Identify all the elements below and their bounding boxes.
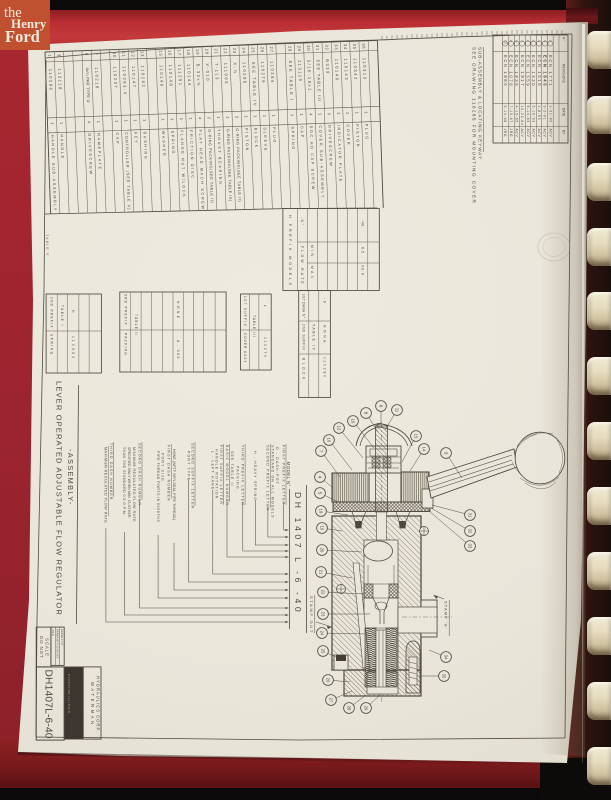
svg-text:SCALE: SCALE	[44, 638, 49, 657]
svg-text:2: 2	[336, 112, 341, 114]
svg-text:JRG: JRG	[503, 129, 507, 138]
svg-text:-6: -6	[323, 298, 327, 305]
svg-text:110144: 110144	[186, 64, 192, 87]
svg-text:16: 16	[326, 438, 331, 443]
svg-text:BUSHING: BUSHING	[143, 132, 148, 161]
svg-text:1: 1	[59, 122, 64, 124]
svg-text:A - XXX: A - XXX	[176, 340, 180, 360]
svg-text:1: 1	[179, 118, 184, 120]
svg-text:2: 2	[549, 40, 553, 42]
svg-text:DO NOT: DO NOT	[39, 636, 44, 658]
svg-text:1-31-60: 1-31-60	[548, 106, 552, 124]
svg-text:7-15-67: 7-15-67	[509, 106, 513, 124]
svg-text:6: 6	[84, 53, 89, 56]
svg-text:SEE TABLE I: SEE TABLE I	[288, 60, 294, 101]
svg-text:H: H	[71, 310, 75, 313]
svg-text:2: 2	[207, 117, 212, 119]
svg-text:MINIMUM REGULATED FLOW RATE: MINIMUM REGULATED FLOW RATE	[132, 447, 136, 522]
svg-text:FLAT HEAD MACH SCREW: FLAT HEAD MACH SCREW	[198, 130, 205, 211]
svg-text:DH 1407 L -6 -40: DH 1407 L -6 -40	[293, 492, 303, 615]
svg-text:4: 4	[537, 40, 541, 42]
svg-text:X-⅛: X-⅛	[233, 62, 238, 74]
svg-text:9: 9	[509, 40, 513, 42]
svg-text:14: 14	[421, 447, 426, 452]
svg-text:MAXIMUM REGULATED FLOW RATE: MAXIMUM REGULATED FLOW RATE	[104, 447, 108, 523]
svg-text:19: 19	[195, 49, 200, 55]
svg-text:T-113: T-113	[214, 63, 220, 81]
svg-text:110283-X: 110283-X	[122, 66, 128, 96]
svg-text:WASHER: WASHER	[161, 131, 166, 158]
svg-text:ECN 1659: ECN 1659	[526, 55, 531, 87]
svg-text:3: 3	[57, 54, 62, 57]
svg-text:1: 1	[271, 114, 276, 116]
svg-text:25: 25	[320, 649, 325, 654]
svg-text:BY: BY	[562, 130, 566, 135]
svg-text:SPECIFIED ONLY WHEN MIN. IS OT: SPECIFIED ONLY WHEN MIN. IS OTHER	[127, 447, 131, 518]
svg-text:O-RING PACKING(SEE TABLE III): O-RING PACKING(SEE TABLE III)	[226, 129, 233, 202]
svg-text:1ST SUFFIX: 1ST SUFFIX	[243, 296, 247, 327]
svg-text:3: 3	[443, 452, 448, 455]
svg-text:ACV: ACV	[515, 129, 519, 138]
svg-text:23: 23	[320, 612, 325, 617]
svg-text:24: 24	[319, 631, 324, 636]
svg-text:INDICATOR PLATE: INDICATOR PLATE	[337, 125, 343, 183]
svg-text:18: 18	[186, 49, 191, 55]
svg-text:15: 15	[158, 50, 163, 56]
svg-text:9-14-63: 9-14-63	[526, 106, 530, 124]
svg-text:NONE: NONE	[323, 325, 327, 345]
svg-text:20: 20	[319, 548, 324, 553]
svg-text:23: 23	[232, 48, 237, 54]
svg-text:WATERMAN: WATERMAN	[90, 682, 95, 727]
svg-text:DRIVESCREW: DRIVESCREW	[87, 133, 92, 175]
svg-text:17: 17	[177, 50, 182, 56]
svg-text:1-8-63: 1-8-63	[537, 106, 541, 121]
svg-text:4: 4	[198, 117, 203, 120]
svg-text:SEE DRAWING 110285 FOR MOUNTIN: SEE DRAWING 110285 FOR MOUNTING COVER	[472, 47, 477, 204]
svg-text:27: 27	[328, 698, 333, 703]
svg-text:X-010: X-010	[205, 63, 211, 82]
svg-text:4: 4	[317, 476, 322, 479]
svg-text:110280: 110280	[242, 62, 248, 85]
svg-text:110952: 110952	[71, 336, 75, 360]
svg-text:LEVER OPERATED ADJUSTABLE FLOW: LEVER OPERATED ADJUSTABLE FLOW REGULATOR	[55, 381, 64, 616]
svg-text:111291: 111291	[177, 64, 183, 86]
svg-text:110384: 110384	[269, 61, 275, 84]
svg-text:SEE TABLE II: SEE TABLE II	[230, 451, 234, 487]
svg-text:SUB-ASSEMBLY & LOCATING KEYWAY: SUB-ASSEMBLY & LOCATING KEYWAY	[477, 47, 482, 160]
svg-text:1: 1	[133, 119, 138, 121]
svg-text:DH1407L-6-40: DH1407L-6-40	[43, 670, 54, 739]
svg-text:ECN 1835: ECN 1835	[514, 55, 519, 87]
svg-text:JRG: JRG	[509, 129, 513, 138]
svg-text:110147: 110147	[131, 66, 137, 89]
svg-text:111095: 111095	[223, 63, 229, 85]
svg-text:2ND SUFFIX: 2ND SUFFIX	[302, 324, 306, 351]
svg-text:1: 1	[318, 113, 323, 115]
svg-text:H - HEAVY SPRING: H - HEAVY SPRING	[253, 451, 257, 501]
svg-text:TABLE II: TABLE II	[134, 314, 138, 337]
svg-text:THIRD DASH NUMBER: THIRD DASH NUMBER	[109, 443, 113, 501]
svg-text:4: 4	[308, 113, 313, 116]
svg-text:ECN 1817: ECN 1817	[520, 55, 525, 87]
svg-text:ECN 1010: ECN 1010	[537, 55, 542, 87]
svg-text:1: 1	[96, 121, 101, 123]
svg-text:FIRST DASH NUMBER: FIRST DASH NUMBER	[167, 445, 171, 502]
svg-text:1: 1	[290, 114, 295, 116]
svg-text:SCALE 1"=1": SCALE 1"=1"	[60, 629, 64, 646]
svg-text:SECOND DASH NUMBER: SECOND DASH NUMBER	[138, 443, 142, 506]
svg-text:20: 20	[204, 49, 209, 55]
svg-text:33: 33	[334, 44, 339, 50]
svg-text:7: 7	[94, 53, 99, 56]
svg-text:THRUST BEARING: THRUST BEARING	[216, 129, 222, 186]
svg-text:16: 16	[167, 50, 172, 56]
svg-text:110143: 110143	[343, 58, 349, 81]
svg-text:-ASSEMBLY-: -ASSEMBLY-	[66, 449, 75, 506]
svg-text:1: 1	[345, 112, 350, 114]
svg-text:ACV: ACV	[526, 129, 530, 138]
svg-text:110282: 110282	[140, 66, 146, 89]
svg-text:6: 6	[378, 405, 383, 408]
svg-text:PISTON: PISTON	[244, 128, 249, 152]
svg-text:31: 31	[467, 513, 472, 518]
svg-text:8: 8	[363, 412, 368, 415]
svg-text:7: 7	[520, 40, 524, 42]
svg-text:3: 3	[327, 113, 332, 115]
svg-text:KEY: KEY	[133, 132, 137, 145]
svg-text:MODEL N°: MODEL N°	[286, 462, 291, 487]
svg-text:31: 31	[315, 45, 320, 51]
svg-text:6: 6	[526, 40, 530, 42]
svg-text:110313: 110313	[362, 58, 368, 81]
svg-text:110270: 110270	[263, 337, 267, 359]
svg-text:PACKING: PACKING	[123, 333, 127, 356]
svg-text:THIRD PREFIX LETTER: THIRD PREFIX LETTER	[241, 445, 245, 506]
svg-text:STAMP OUT: STAMP OUT	[309, 596, 313, 634]
svg-text:SLEEVE: SLEEVE	[263, 127, 268, 152]
svg-text:24: 24	[241, 47, 246, 53]
svg-text:CAP: CAP	[300, 126, 304, 139]
svg-text:1: 1	[355, 112, 360, 114]
svg-text:BLOCK: BLOCK	[253, 128, 258, 149]
svg-text:O-RING PACKING(SEE TABLE II): O-RING PACKING(SEE TABLE II)	[235, 128, 242, 202]
svg-text:SECOND PREFIX LETTER: SECOND PREFIX LETTER	[266, 445, 270, 512]
svg-text:110279: 110279	[260, 61, 266, 84]
svg-text:L - LEFT HAND: L - LEFT HAND	[211, 451, 215, 491]
svg-text:6.5: 6.5	[361, 247, 365, 254]
svg-text:3-2-61: 3-2-61	[543, 106, 547, 121]
svg-text:2ND PREFIX: 2ND PREFIX	[50, 297, 54, 329]
svg-text:FLANGE NUT W/LOCK: FLANGE NUT W/LOCK	[180, 130, 186, 198]
svg-text:3: 3	[234, 116, 239, 118]
svg-text:DRIVESCREW: DRIVESCREW	[327, 125, 332, 167]
svg-text:COVER: COVER	[346, 124, 351, 146]
svg-text:BLOCK: BLOCK	[302, 358, 306, 382]
svg-text:4-15-65: 4-15-65	[515, 106, 519, 124]
svg-text:HANDLE: HANDLE	[59, 134, 64, 159]
svg-text:ACV: ACV	[548, 129, 552, 138]
svg-text:5-16-63: 5-16-63	[531, 106, 535, 124]
svg-text:4: 4	[87, 121, 92, 124]
svg-text:13: 13	[140, 51, 145, 57]
svg-text:27: 27	[269, 46, 274, 52]
svg-text:36: 36	[361, 43, 366, 49]
svg-text:35: 35	[441, 674, 446, 679]
svg-text:1: 1	[142, 119, 147, 121]
svg-text:STANDARD ON ALL MODELS: STANDARD ON ALL MODELS	[271, 445, 275, 519]
svg-text:32: 32	[324, 44, 329, 50]
svg-text:PISTON: PISTON	[355, 124, 360, 148]
svg-text:ACV: ACV	[537, 129, 541, 138]
svg-text:110218: 110218	[94, 67, 100, 90]
svg-text:21: 21	[318, 570, 323, 575]
svg-text:110286: 110286	[48, 69, 54, 92]
svg-text:FIRST PREFIX LETTER: FIRST PREFIX LETTER	[282, 445, 286, 505]
svg-text:DRAWN BY 9-21-60 ACV: DRAWN BY 9-21-60 ACV	[56, 629, 60, 659]
svg-text:11: 11	[121, 52, 126, 58]
svg-text:19: 19	[318, 509, 323, 514]
svg-text:PLUG: PLUG	[272, 127, 277, 144]
svg-text:ECN 1771: ECN 1771	[548, 55, 553, 87]
svg-text:DATE: DATE	[562, 108, 566, 116]
svg-text:STAMP ‘B’: STAMP ‘B’	[443, 601, 447, 630]
svg-text:110237: 110237	[113, 66, 119, 89]
svg-text:22: 22	[223, 48, 228, 54]
svg-text:O-RING PACKING(SEE TABLE II): O-RING PACKING(SEE TABLE II)	[207, 129, 214, 203]
svg-text:7: 7	[318, 450, 323, 453]
svg-text:21: 21	[214, 48, 219, 54]
svg-text:32: 32	[467, 529, 472, 534]
svg-text:33: 33	[467, 544, 472, 549]
svg-text:COVER ASSY: COVER ASSY	[243, 333, 247, 364]
svg-text:PORT SIZE: PORT SIZE	[161, 453, 165, 482]
svg-text:3RD PREFIX: 3RD PREFIX	[123, 294, 127, 326]
svg-text:35: 35	[352, 44, 357, 50]
svg-text:9-10-68: 9-10-68	[503, 106, 507, 124]
svg-text:1: 1	[253, 115, 258, 117]
svg-text:COVER SUB-ASSEMBLY: COVER SUB-ASSEMBLY	[318, 125, 325, 199]
svg-text:1: 1	[364, 111, 369, 113]
svg-text:SPRING: SPRING	[290, 126, 295, 151]
svg-text:34: 34	[443, 655, 448, 660]
svg-text:11: 11	[394, 408, 399, 413]
svg-text:SOC HD CAP SCREW: SOC HD CAP SCREW	[309, 126, 315, 191]
svg-text:5/16-18x1: 5/16-18x1	[306, 60, 312, 92]
svg-text:1: 1	[225, 116, 230, 118]
svg-text:PIPE THREAD PORTS IN EIGHTHS: PIPE THREAD PORTS IN EIGHTHS	[156, 451, 160, 522]
svg-text:SPRING: SPRING	[50, 334, 54, 356]
svg-text:113119: 113119	[297, 60, 303, 82]
svg-text:5: 5	[317, 492, 322, 495]
svg-text:4-5-9: 4-5-9	[51, 629, 55, 636]
svg-text:B339: B339	[325, 59, 331, 75]
svg-text:H PREFIX MODELS: H PREFIX MODELS	[288, 215, 292, 288]
svg-text:1: 1	[299, 113, 304, 115]
svg-text:1ST DASH N°: 1ST DASH N°	[302, 294, 306, 319]
svg-text:TABLE IV: TABLE IV	[312, 324, 316, 351]
svg-text:1: 1	[50, 122, 55, 124]
svg-text:MAX: MAX	[310, 266, 314, 280]
svg-text:110149: 110149	[159, 65, 165, 88]
svg-text:CONTROLLER (SEE TABLE V): CONTROLLER (SEE TABLE V)	[124, 132, 131, 210]
svg-text:NONE (NPTF DRY-SEAL PIPE THREA: NONE (NPTF DRY-SEAL PIPE THREAD)	[172, 449, 176, 520]
svg-text:5: 5	[532, 40, 536, 42]
svg-text:ECN 1076: ECN 1076	[509, 55, 514, 87]
svg-text:3: 3	[543, 40, 547, 42]
svg-text:29: 29	[363, 706, 368, 711]
svg-text:ECN 1845: ECN 1845	[542, 55, 547, 87]
svg-text:110148: 110148	[168, 65, 174, 88]
svg-text:CAP: CAP	[115, 132, 119, 145]
svg-text:ACV: ACV	[543, 129, 547, 138]
svg-text:1: 1	[161, 118, 166, 120]
svg-text:B-32x⅜: B-32x⅜	[196, 64, 202, 88]
svg-text:10: 10	[112, 52, 117, 58]
svg-text:8: 8	[515, 40, 519, 42]
svg-text:110280: 110280	[323, 357, 327, 379]
svg-text:MIN: MIN	[310, 245, 314, 258]
svg-text:TABLE I: TABLE I	[60, 305, 64, 327]
svg-text:26: 26	[325, 678, 330, 683]
svg-text:ACV: ACV	[520, 129, 524, 138]
svg-text:12: 12	[131, 51, 136, 57]
svg-text:SEE TABLE IV: SEE TABLE IV	[251, 62, 258, 108]
svg-text:TABLE V: TABLE V	[45, 234, 50, 257]
svg-text:1: 1	[124, 120, 129, 122]
svg-text:NAMEPLATE: NAMEPLATE	[96, 133, 101, 171]
svg-text:N°: N°	[562, 37, 566, 41]
svg-text:28: 28	[287, 46, 292, 52]
svg-text:15: 15	[413, 434, 418, 439]
svg-text:ECN 1886: ECN 1886	[503, 55, 508, 87]
svg-text:10: 10	[503, 40, 507, 44]
svg-text:FLOW RATE: FLOW RATE	[300, 246, 304, 286]
svg-text:L: L	[263, 305, 267, 307]
svg-text:EVANSTON ILLINOIS: EVANSTON ILLINOIS	[67, 674, 71, 714]
svg-text:1: 1	[114, 120, 119, 122]
svg-text:1: 1	[262, 115, 267, 117]
svg-text:34: 34	[343, 44, 348, 50]
svg-text:25: 25	[251, 47, 256, 53]
svg-text:ACV: ACV	[531, 129, 535, 138]
svg-text:-N°: -N°	[300, 217, 304, 226]
svg-text:16: 16	[319, 526, 324, 531]
svg-text:1: 1	[47, 54, 52, 57]
svg-text:30: 30	[306, 45, 311, 51]
svg-text:26: 26	[260, 47, 265, 53]
svg-text:1: 1	[244, 115, 249, 117]
svg-text:NONE: NONE	[176, 301, 180, 320]
svg-text:ECN 1630: ECN 1630	[531, 55, 536, 87]
svg-text:113118: 113118	[57, 68, 63, 90]
svg-text:TABLE III: TABLE III	[252, 315, 256, 338]
svg-text:1: 1	[216, 116, 221, 118]
svg-text:SPRING: SPRING	[170, 131, 175, 156]
svg-text:PLUG: PLUG	[364, 124, 369, 141]
svg-text:THAN THE STANDARD 0.8 G.P.M.: THAN THE STANDARD 0.8 G.P.M.	[122, 447, 126, 516]
svg-text:1: 1	[170, 118, 175, 120]
svg-text:1: 1	[188, 117, 193, 119]
svg-text:40.0: 40.0	[361, 265, 365, 276]
svg-text:22: 22	[320, 590, 325, 595]
svg-text:PACKING: PACKING	[236, 466, 240, 490]
svg-text:SEE TABLE III: SEE TABLE III	[316, 59, 323, 102]
svg-text:FRICTION DISC: FRICTION DISC	[189, 130, 195, 180]
svg-text:HYDRAULICS CORP.: HYDRAULICS CORP.	[95, 676, 100, 733]
svg-text:10: 10	[350, 419, 355, 424]
svg-text:4x¼ PAR TYPE U: 4x¼ PAR TYPE U	[85, 67, 91, 102]
svg-text:BASIC MODEL NUMBER: BASIC MODEL NUMBER	[225, 445, 229, 506]
svg-text:-40: -40	[361, 220, 365, 227]
svg-text:110149: 110149	[334, 59, 340, 82]
svg-text:110342: 110342	[353, 58, 359, 81]
svg-text:10-22-64: 10-22-64	[520, 106, 524, 126]
svg-text:29: 29	[297, 45, 302, 51]
svg-text:PORT TYPE: PORT TYPE	[186, 451, 190, 481]
svg-text:12: 12	[336, 426, 341, 431]
svg-text:REVISIONS: REVISIONS	[562, 64, 566, 83]
svg-text:HANDLE SUB-ASSEMBLY: HANDLE SUB-ASSEMBLY	[50, 135, 57, 212]
svg-text:28: 28	[346, 706, 351, 711]
